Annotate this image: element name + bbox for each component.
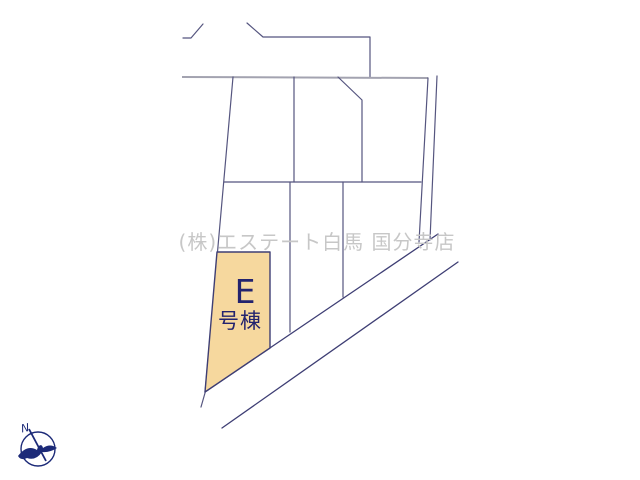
east-boundary-line-outer [430,76,437,240]
north-parcel-edge-left [183,24,203,38]
top-street-line [182,77,428,78]
compass-north-icon: N [18,421,57,466]
site-plan-image: E 号棟 (株)エステート白馬 国分寺店 N [0,0,640,480]
compass-bird-shape [18,445,57,459]
site-plan-drawing: E 号棟 (株)エステート白馬 国分寺店 N [0,0,640,480]
compass-north-label: N [20,421,31,435]
unit-e-label: E [235,272,256,311]
east-boundary-line-inner [419,78,428,242]
upper-row-divider-2-corner-cut [338,77,362,182]
unit-e-type-label: 号棟 [218,309,262,333]
north-parcel-edge-right [247,23,370,77]
company-watermark: (株)エステート白馬 国分寺店 [179,230,456,254]
